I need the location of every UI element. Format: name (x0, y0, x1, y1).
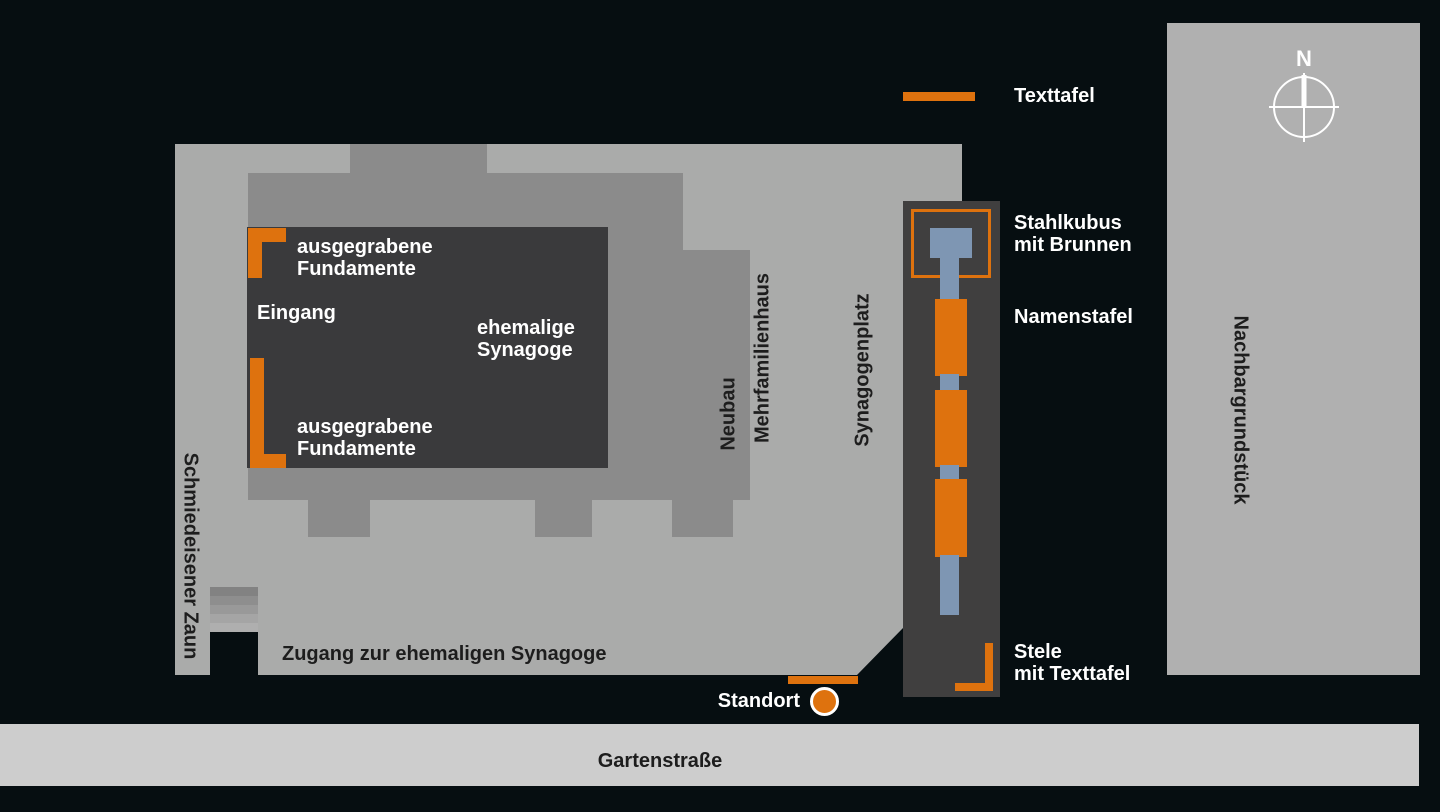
label-fundamente-lower: ausgegrabene Fundamente (297, 416, 433, 460)
legend-texttafel-label: Texttafel (1014, 85, 1095, 107)
label-gartenstrasse: Gartenstraße (560, 750, 760, 772)
label-standort: Standort (660, 690, 800, 712)
site-plan: Texttafel Stahlkubus mit Brunnen Namenst… (0, 0, 1440, 812)
foundation-bracket-bottom-horizontal (250, 454, 286, 468)
label-mehrfamilienhaus: Mehrfamilienhaus (752, 273, 775, 443)
stele-marker-vertical (985, 643, 993, 691)
legend-texttafel-swatch (903, 92, 975, 101)
label-nachbargrundstueck: Nachbargrundstück (1229, 316, 1252, 505)
name-panel-2 (935, 390, 967, 467)
foundation-bracket-top-horizontal (248, 228, 286, 242)
label-eingang: Eingang (257, 302, 336, 324)
label-stele: Stele mit Texttafel (1014, 641, 1130, 685)
label-synagogenplatz: Synagogenplatz (852, 293, 875, 446)
label-neubau: Neubau (718, 377, 741, 450)
panel-connector-tail (940, 555, 959, 615)
fountain-shape-stem (940, 254, 959, 302)
compass-north-label: N (1289, 48, 1319, 70)
standort-marker-dot (810, 687, 839, 716)
foundation-bracket-bottom-vertical (250, 358, 264, 468)
entrance-steps (210, 587, 258, 632)
label-ehemalige-synagoge: ehemalige Synagoge (477, 317, 575, 361)
label-stahlkubus: Stahlkubus mit Brunnen (1014, 212, 1132, 256)
name-panel-3 (935, 479, 967, 557)
label-schmiedeisener-zaun: Schmiedeisener Zaun (179, 453, 202, 660)
label-fundamente-upper: ausgegrabene Fundamente (297, 236, 433, 280)
standort-text-panel-bar (788, 676, 858, 684)
name-panel-1 (935, 299, 967, 376)
label-namenstafel: Namenstafel (1014, 306, 1133, 328)
label-zugang: Zugang zur ehemaligen Synagoge (282, 643, 607, 665)
